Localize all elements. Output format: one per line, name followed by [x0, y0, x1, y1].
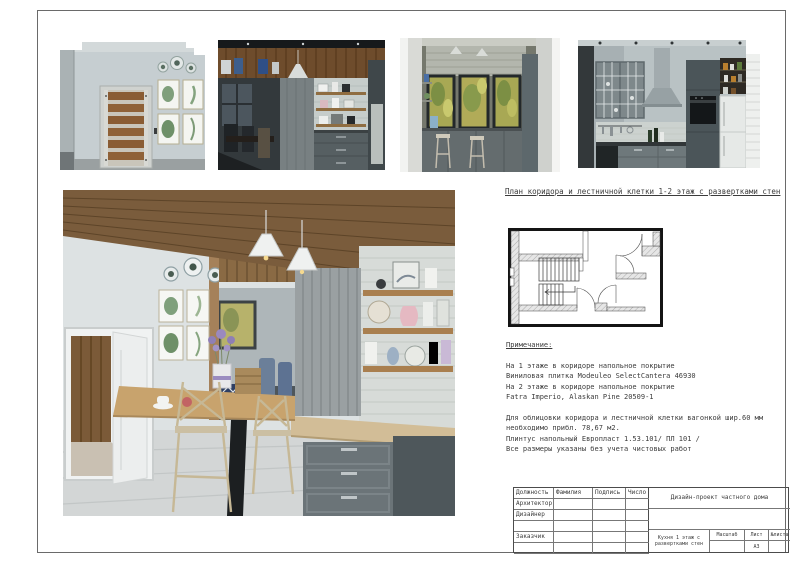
render-kitchen-perspective-main: [63, 190, 455, 516]
countertop-and-cabinets: [291, 416, 455, 516]
base-cabinets: [314, 130, 368, 170]
note-line: Для облицовки коридора и лестничной клет…: [506, 413, 791, 424]
header-name: Фамилия: [554, 488, 593, 499]
note-line: На 1 этаже в коридоре напольное покрытие: [506, 361, 791, 372]
render-corridor-door-elevation: [60, 42, 205, 170]
scale-label: Масштаб: [710, 530, 745, 541]
windows-with-garden-view: [428, 76, 520, 128]
drawing-sheet: План коридора и лестничной клетки 1-2 эт…: [0, 0, 800, 565]
note-line: Плинтус напольный Европласт 1.53.101/ ПЛ…: [506, 434, 791, 445]
partition-ribbed: [295, 268, 361, 416]
dark-corner: [578, 46, 594, 168]
plan-title: План коридора и лестничной клетки 1-2 эт…: [505, 186, 790, 197]
kitchen-windows-illustration: [400, 38, 560, 172]
format-value: А3: [745, 541, 769, 552]
project-name: Дизайн-проект частного дома: [649, 488, 790, 509]
role-cell: Дизайнер: [514, 510, 554, 521]
louver-panel: [746, 40, 760, 168]
teapot: [182, 397, 192, 407]
backsplash-and-rail: [596, 122, 688, 142]
brick-wall-shelves: [359, 246, 455, 430]
base-cabinets-row: [596, 142, 692, 168]
render-kitchen-appliance-wall-elevation: [578, 40, 760, 168]
striped-door: [100, 86, 157, 168]
role-cell: Архитектор: [514, 499, 554, 510]
header-signature: Подпись: [593, 488, 626, 499]
fridge: [720, 96, 746, 168]
render-kitchen-windows-elevation: [400, 38, 560, 172]
title-block-project: Дизайн-проект частного дома Кухня 1 этаж…: [649, 488, 790, 552]
roman-shade: [426, 46, 526, 76]
drawer-stack: [303, 442, 393, 516]
note-line: Все размеры указаны без учета чистовых р…: [506, 444, 791, 455]
title-block: Должность Фамилия Подпись Число Архитект…: [513, 487, 789, 553]
role-cell: [514, 543, 554, 554]
title-block-signatures: Должность Фамилия Подпись Число Архитект…: [514, 488, 649, 552]
role-cell: [514, 521, 554, 532]
open-shelves-jars: [720, 58, 746, 94]
shelf-wall: [314, 78, 368, 132]
basket: [235, 368, 261, 394]
floor-plan: [508, 228, 663, 327]
note-line: На 2 этаже в коридоре напольное покрытие: [506, 382, 791, 393]
floor-plan-drawing: [508, 228, 663, 327]
notes-block: Примечание: На 1 этаже в коридоре наполь…: [506, 340, 791, 455]
render-kitchen-shelves-elevation: [218, 40, 385, 170]
header-role: Должность: [514, 488, 554, 499]
cup: [157, 396, 169, 404]
note-line: необходимо прибл. 78,67 м2.: [506, 423, 791, 434]
header-date: Число: [626, 488, 649, 499]
kitchen-elevation-illustration: [578, 40, 760, 168]
note-line: Fatra Imperio, Alaskan Pine 20509-1: [506, 392, 791, 403]
notes-heading: Примечание:: [506, 340, 791, 351]
kitchen-dark-view-illustration: [218, 40, 385, 170]
sheet-no-label: №листа: [769, 530, 790, 541]
role-cell: Заказчик: [514, 532, 554, 543]
sheet-label: Лист: [745, 530, 769, 541]
note-line: Виниловая плитка Modeuleo SelectCantera …: [506, 371, 791, 382]
tall-oven-unit: [686, 60, 720, 168]
glass-cabinet: [596, 62, 644, 118]
kitchen-perspective-illustration: [63, 190, 455, 516]
drawing-title: Кухня 1 этаж с развертками стен: [649, 530, 710, 552]
tall-cabinet: [522, 54, 538, 172]
corridor-door-illustration: [60, 42, 205, 170]
